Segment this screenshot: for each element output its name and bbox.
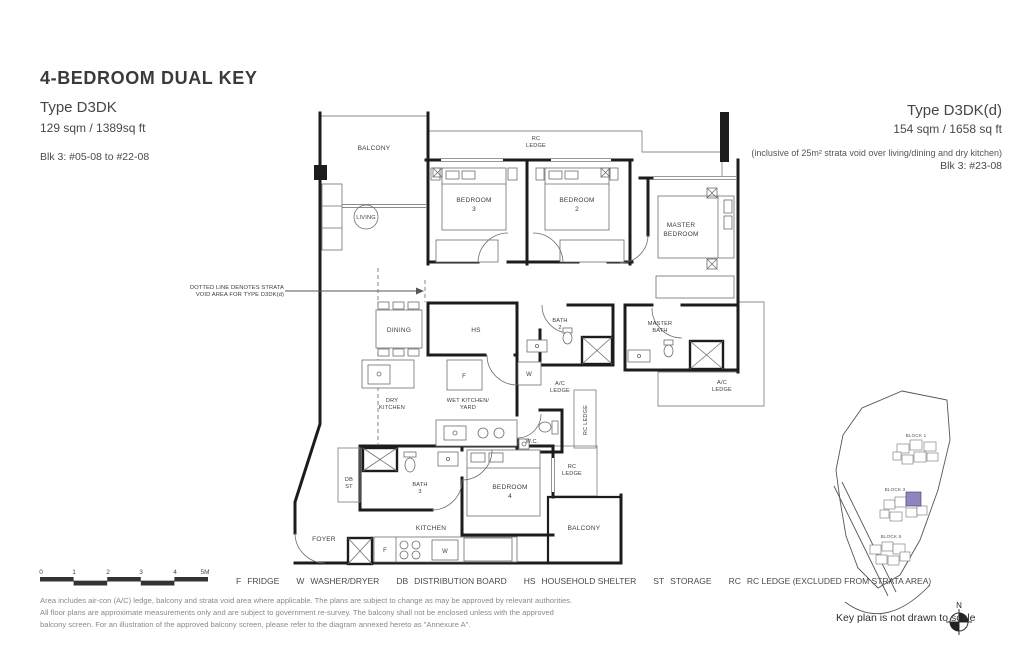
legend-item-fridge: FFRIDGE <box>236 576 279 586</box>
label-fridge-kitchen: F <box>383 548 387 554</box>
legend-item-rc: RCRC LEDGE (EXCLUDED FROM STRATA AREA) <box>729 576 932 586</box>
label-bath2-2: 2 <box>558 325 561 331</box>
legend-item-hs: HSHOUSEHOLD SHELTER <box>524 576 637 586</box>
label-hs: HS <box>471 327 481 334</box>
label-bedroom3-2: 3 <box>472 206 476 213</box>
label-wet-kitchen-2: YARD <box>460 405 476 411</box>
keyplan-block5-units <box>870 542 910 565</box>
label-bath3-1: BATH <box>412 482 427 488</box>
label-rc-ledge-mid: RC LEDGE <box>583 405 589 435</box>
scale-bar: 0 1 2 3 4 5M <box>39 569 209 586</box>
label-kitchen: KITCHEN <box>416 525 446 532</box>
label-ac-ledge-mid-1: A/C <box>555 381 565 387</box>
legend: FFRIDGE WWASHER/DRYER DBDISTRIBUTION BOA… <box>236 576 931 586</box>
label-rc-ledge-lower-2: LEDGE <box>562 471 582 477</box>
label-washer-kitchen: W <box>442 549 448 555</box>
label-master-bedroom-2: BEDROOM <box>663 231 698 238</box>
legend-item-washer: WWASHER/DRYER <box>296 576 379 586</box>
label-db-st-2: ST <box>345 484 353 490</box>
bedroom3-furniture <box>431 168 517 262</box>
scale-tick-3: 3 <box>139 569 143 576</box>
floor-plan-drawing: BALCONY RC LEDGE LIVING BEDROOM 3 BEDROO… <box>0 0 1024 663</box>
label-bedroom3-1: BEDROOM <box>456 197 491 204</box>
master-bedroom-furniture <box>620 196 734 298</box>
disclaimer-line-1: Area includes air-con (A/C) ledge, balco… <box>40 595 572 607</box>
label-ac-ledge-right-1: A/C <box>717 380 727 386</box>
label-foyer: FOYER <box>312 536 336 543</box>
label-balcony-bottom: BALCONY <box>568 525 601 532</box>
label-master-bedroom-1: MASTER <box>667 222 696 229</box>
bedroom2-furniture <box>533 168 624 262</box>
label-rc-ledge-lower-1: RC <box>568 464 576 470</box>
disclaimer: Area includes air-con (A/C) ledge, balco… <box>40 595 572 630</box>
floor-plan-page: 4-BEDROOM DUAL KEY Type D3DK 129 sqm / 1… <box>0 0 1024 663</box>
label-ac-ledge-right-2: LEDGE <box>712 387 732 393</box>
label-wet-kitchen-1: WET KITCHEN/ <box>447 398 490 404</box>
bedroom4-furniture <box>462 450 540 516</box>
label-bedroom4-2: 4 <box>508 493 512 500</box>
dry-kitchen-counter <box>362 360 414 388</box>
label-bedroom2-1: BEDROOM <box>559 197 594 204</box>
label-wc: W.C. <box>526 439 539 445</box>
keyplan-highlighted-unit <box>906 492 921 506</box>
hs-door-arc <box>487 355 517 385</box>
label-dry-kitchen-2: KITCHEN <box>379 405 405 411</box>
keyplan-block1-units <box>893 440 938 464</box>
label-master-bath-2: BATH <box>652 328 667 334</box>
annotation-line-1: DOTTED LINE DENOTES STRATA <box>190 285 284 291</box>
label-balcony-top: BALCONY <box>358 145 391 152</box>
keyplan-block1-label: BLOCK 1 <box>906 433 927 438</box>
disclaimer-line-3: balcony screen. For an illustration of t… <box>40 619 572 631</box>
label-master-bath-1: MASTER <box>648 321 673 327</box>
legend-item-db: DBDISTRIBUTION BOARD <box>396 576 506 586</box>
label-washer-mid: W <box>526 372 532 378</box>
scale-tick-4: 4 <box>173 569 177 576</box>
north-label: N <box>956 601 962 610</box>
scale-tick-0: 0 <box>39 569 43 576</box>
key-plan: BLOCK 1 BLOCK 3 BLOCK 5 N <box>834 391 972 635</box>
label-bath3-2: 3 <box>418 489 421 495</box>
label-ac-ledge-mid-2: LEDGE <box>550 388 570 394</box>
keyplan-block5-label: BLOCK 5 <box>881 534 902 539</box>
keyplan-note: Key plan is not drawn to scale <box>836 612 976 624</box>
label-fridge-wet: F <box>462 374 466 380</box>
strata-annotation: DOTTED LINE DENOTES STRATA VOID AREA FOR… <box>190 285 284 298</box>
annotation-line-2: VOID AREA FOR TYPE D3DK(d) <box>196 292 284 298</box>
disclaimer-line-2: All floor plans are approximate measurem… <box>40 607 572 619</box>
label-living: LIVING <box>356 215 376 221</box>
scale-tick-2: 2 <box>106 569 110 576</box>
label-rc-ledge-top-2: LEDGE <box>526 143 546 149</box>
legend-item-st: STSTORAGE <box>653 576 711 586</box>
scale-tick-1: 1 <box>72 569 76 576</box>
bath3-fixtures <box>338 448 462 510</box>
label-bedroom4-1: BEDROOM <box>492 484 527 491</box>
living-sofa <box>322 184 342 250</box>
label-dry-kitchen-1: DRY <box>386 398 398 404</box>
label-rc-ledge-top-1: RC <box>532 136 540 142</box>
master-bath-fixtures <box>628 308 723 369</box>
keyplan-block3-label: BLOCK 3 <box>885 487 906 492</box>
label-db-st-1: DB <box>345 477 353 483</box>
label-bedroom2-2: 2 <box>575 206 579 213</box>
label-dining: DINING <box>387 327 411 334</box>
keyplan-block3-units <box>880 492 927 521</box>
scale-tick-5: 5M <box>200 569 209 576</box>
label-bath2-1: BATH <box>552 318 567 324</box>
